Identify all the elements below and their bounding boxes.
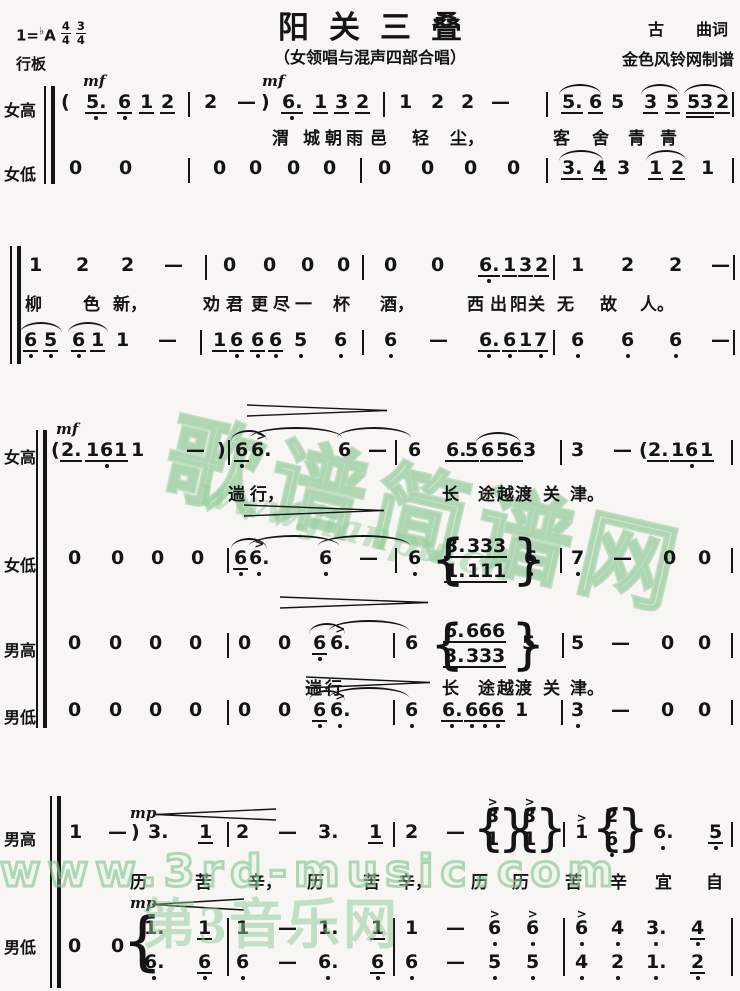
octave-dot [674,354,678,358]
accent-icon: > [577,808,587,828]
sheet-music-page: 1=♭A4434 行板 阳关三叠 （女领唱与混声四部合唱） 古 曲词 金色风铃网… [0,0,740,991]
note-value: 2 [355,92,370,114]
lyric-syllable: 更 [251,290,268,315]
lyric-syllable: 出 [490,290,507,315]
note-value: 0 [67,633,82,653]
note-token: 0 [286,158,301,178]
note-value: 4 [690,918,705,940]
lyric-syllable: 劝 [203,290,220,315]
accent-icon: > [577,904,587,924]
lyric-syllable: 遄 [228,480,245,505]
note-token: 6 [508,440,523,462]
lyric-syllable: 青 [628,124,645,149]
barline [360,158,362,183]
octave-dot [235,354,239,358]
octave-dot [531,942,535,946]
note-value: 6 [318,548,333,568]
note-value: — [358,548,379,568]
hairpin [156,808,276,822]
note-value: 0 [697,633,712,653]
note-token: — [490,92,511,112]
note-value: 6 [684,440,699,462]
slur-arc [646,150,686,161]
hairpin [244,504,384,518]
note-token: 0 [377,158,392,178]
hairpin-lines [306,676,430,690]
note-value: — [490,92,511,112]
chord-brace: { [431,532,465,588]
note-token: 0 [383,255,398,275]
note-token: 0 [662,548,677,568]
note-value: 0 [662,548,677,568]
lyric-syllable: 越 [497,480,514,505]
note-token: ) [260,92,271,112]
dynamic-mark: mf [262,72,284,90]
note-value: 3 [616,158,631,178]
note-token: 3 [334,92,349,114]
note-value: 3 [699,92,714,118]
note-token: 1 [198,822,213,844]
note-token: 0 [237,633,252,653]
note-value: 1 [212,330,227,352]
hairpin-lines [156,808,276,822]
note-token: 6 [268,330,283,352]
note-value: 0 [383,255,398,275]
note-value: 0 [67,548,82,568]
note-value: 0 [420,158,435,178]
note-token: 5 [464,440,479,462]
note-value: 6. [478,330,500,352]
note-value: 3 [570,700,585,720]
note-value: 2 [75,255,90,275]
octave-dot [324,572,328,576]
note-token: 5 [487,952,502,972]
octave-dot [496,724,500,728]
note-value: — [445,822,466,842]
note-value: 5 [487,952,502,972]
voice-label: 男低 [4,934,36,958]
note-value: 3 [522,440,537,460]
note-token: 6.> [248,548,270,568]
note-value: 0 [463,158,478,178]
note-token: 0 [148,633,163,653]
barline [732,158,734,183]
note-token: — [277,822,298,842]
note-token: — [710,255,731,275]
note-value: 0 [67,936,82,956]
note-token: 1 [492,561,507,583]
voice-label: 女低 [4,161,36,185]
lyric-syllable: 城 [303,124,320,149]
note-token: 6. [478,255,500,277]
octave-dot [487,279,491,283]
lyric-syllable: 故 [600,290,617,315]
lyric-syllable: 杯 [333,290,350,315]
note-value: 6. [478,255,500,277]
note-token: 3 [643,92,658,114]
note-value: 6 [508,440,523,462]
chord-brace: { [430,617,464,673]
octave-dot [326,976,330,980]
slur-arc [641,84,679,95]
note-value: 0 [322,158,337,178]
note-token: 1 [130,440,145,460]
note-value: 0 [188,633,203,653]
note-value: 0 [697,700,712,720]
note-value: 1 [514,700,529,720]
note-token: — [358,548,379,568]
note-token: 5 [525,952,540,972]
note-value: 6 [407,440,422,460]
note-value: 7 [533,330,548,352]
barline [731,700,733,725]
note-token: 2 [235,822,250,842]
accent-icon: > [528,904,538,924]
note-value: 6 [117,92,132,114]
note-token: 3 [518,255,533,277]
lyric-syllable: 津。 [570,480,604,505]
octave-dot [49,354,53,358]
note-value: 6 [404,952,419,972]
note-value: 1 [313,92,328,114]
hairpin-lines [244,504,384,518]
note-value: 2 [460,92,475,112]
note-token: 1 [368,822,383,844]
note-token: 2. [60,440,82,462]
note-value: 1 [28,255,43,275]
note-token: 2 [120,255,135,275]
note-token: 3 [699,92,714,118]
octave-dot [77,354,81,358]
note-token: — [610,633,631,653]
voice-label: 女高 [4,97,36,121]
note-token: 1 [90,330,105,352]
note-value: 6 [333,330,348,350]
lyric-syllable: 阳 [510,290,527,315]
lyric-syllable: 渡 [515,480,532,505]
note-token: 5 [665,92,680,114]
note-value: 3. [561,158,583,180]
note-value: 1 [518,330,533,352]
slur-arc [559,84,601,95]
dynamic-mark: mf [56,420,78,438]
note-token: 0 [67,548,82,568]
note-value: 6 [620,330,635,350]
barline [546,92,548,117]
lyric-syllable: 青 [660,124,677,149]
note-value: 5. [85,92,107,114]
note-value: — [612,440,633,460]
note-token: 2 [668,255,683,275]
octave-dot [203,976,207,980]
note-value: 2 [668,255,683,275]
chord-brace: } [511,617,545,673]
note-value: — [612,548,633,568]
note-value: ) [216,440,227,460]
note-token: 3 [492,536,507,558]
note-token: 7 [533,330,548,352]
note-token: 6 [404,700,419,720]
note-token: 2 [460,92,475,112]
octave-dot [714,846,718,850]
octave-dot [376,976,380,980]
octave-dot [580,976,584,980]
note-value: 6 [337,440,352,460]
lyric-syllable: 关 [543,674,560,699]
note-token: 5. [85,92,107,114]
note-value: 0 [118,158,133,178]
note-token: 0 [108,633,123,653]
watermark-3rdmusic-name: 第3音乐网 [142,880,400,959]
note-value: 5 [610,92,625,112]
note-value: 2 [610,952,625,972]
octave-dot [616,976,620,980]
note-token: 0 [277,633,292,653]
note-token: 3 [491,646,506,668]
note-token: 1 [518,330,533,352]
barline [393,633,395,658]
note-token: 1 [514,700,529,720]
voice-label: 男高 [4,637,36,661]
note-token: 2 [715,92,730,114]
barline [395,548,397,573]
note-token: 6 [668,330,683,350]
system-bracket [10,246,21,364]
lyric-syllable: 酒， [380,290,414,315]
lyric-syllable: 人。 [640,290,674,315]
note-token: 3 [570,700,585,720]
song-title: 阳关三叠 [0,2,740,47]
octave-dot [493,976,497,980]
note-token: 2 [355,92,370,114]
note-token: 6> [525,918,540,938]
note-token: ) [216,440,227,460]
note-token: 1 [502,255,517,277]
chord-brace: } [512,532,546,588]
octave-dot [339,354,343,358]
note-value: 6 [404,633,419,653]
barline [227,822,229,847]
note-token: — [107,822,128,842]
note-token: 6 [312,700,327,722]
hairpin [280,596,428,610]
note-token: 6 [684,440,699,462]
note-value: — [710,330,731,350]
barline [731,548,733,573]
note-token: 1 [212,330,227,352]
note-value: 0 [237,633,252,653]
note-value: 4 [592,158,607,180]
note-value: 5 [43,330,58,352]
note-token: 0 [188,633,203,653]
note-value: 1 [570,255,585,275]
note-token: 0 [336,255,351,275]
note-token: 6.> [329,700,351,720]
barline [560,548,562,573]
lyric-syllable: 尘， [450,124,484,149]
note-value: 6 [668,330,683,350]
note-token: 3 [616,158,631,178]
hairpin [247,404,387,418]
note-token: 0 [67,633,82,653]
note-value: 6 [312,633,327,655]
lyric-syllable: 邑 [370,124,387,149]
note-token: 1 [85,440,100,462]
note-token: 0 [660,700,675,720]
note-value: 6 [491,621,506,643]
barline [546,158,548,183]
barline [362,255,364,280]
note-token: 1 [139,92,154,114]
barline [395,440,397,465]
note-token: — [157,330,178,350]
note-token: 2 [534,255,549,277]
octave-dot [389,354,393,358]
octave-dot [580,942,584,946]
note-value: 1 [198,822,213,844]
note-value: 0 [277,633,292,653]
octave-dot [576,724,580,728]
note-value: 0 [430,255,445,275]
note-token: 6 [490,700,505,722]
lyric-syllable: 客 [553,124,570,149]
lyric-syllable: 关 [528,290,545,315]
note-token: 0 [150,548,165,568]
note-token: 5 [293,330,308,350]
note-token: 7 [570,548,585,568]
slur-arc [20,322,62,333]
octave-dot [654,942,658,946]
note-value: — [277,822,298,842]
note-value: 0 [697,548,712,568]
note-value: 2. [60,440,82,462]
octave-dot [508,354,512,358]
note-token: 0 [110,548,125,568]
barline [561,700,563,725]
note-value: 1 [502,255,517,277]
note-token: — [612,440,633,460]
note-token: 1 [570,255,585,275]
note-token: — [710,330,731,350]
voice-label: 女低 [4,552,36,576]
barline [562,633,564,658]
note-token: 6. [441,700,463,722]
note-value: 0 [148,700,163,720]
note-value: 2 [235,822,250,842]
note-value: 1 [648,158,663,180]
note-token: 0 [68,158,83,178]
barline [731,633,733,658]
barline [560,440,562,465]
octave-dot [257,572,261,576]
note-value: 6 [23,330,38,352]
note-value: 3. [317,822,339,842]
note-value: 6 [502,330,517,352]
note-value: 6 [312,700,327,722]
note-value: 4 [610,918,625,938]
lyric-syllable: 关 [543,480,560,505]
note-token: — [445,952,466,972]
lyric-syllable: 途 [478,480,495,505]
octave-dot [410,976,414,980]
note-token: 6 [480,440,495,462]
note-value: 2 [690,952,705,974]
lyric-syllable: 西 [467,290,484,315]
note-token: 0 [660,633,675,653]
note-token: 6 [404,633,419,653]
octave-dot [483,724,487,728]
voice-label: 女高 [4,444,36,468]
note-value: 6. [281,92,303,114]
note-value: 0 [212,158,227,178]
note-token: — [428,330,449,350]
note-token: 0 [463,158,478,178]
lyric-syllable: 渭 [272,124,289,149]
note-value: 1 [670,440,685,462]
octave-dot [239,572,243,576]
barline [362,330,364,355]
note-value: 6 [99,440,114,462]
note-value: 1 [492,561,507,583]
barline [563,918,565,976]
octave-dot [450,724,454,728]
note-value: 0 [286,158,301,178]
note-value: 3 [518,255,533,277]
note-token: ) [130,822,141,842]
barline [553,330,555,355]
note-value: 6 [570,330,585,350]
note-token: 0 [697,700,712,720]
note-token: 4 [592,158,607,180]
note-token: 0 [212,158,227,178]
barline [733,255,735,280]
lyric-syllable: 一 [295,290,312,315]
note-token: 6 [233,548,248,570]
note-token: 1 [28,255,43,275]
lyric-syllable: 长 [442,480,459,505]
lyric-syllable: 宜 [655,868,672,893]
note-value: 1 [368,822,383,844]
note-value: 2 [203,92,218,112]
note-value: 2 [670,158,685,180]
note-token: 1 [313,92,328,114]
octave-dot [696,942,700,946]
barline [553,255,555,280]
note-token: 6 [23,330,38,352]
note-token: 3. [147,822,169,842]
note-value: 0 [67,700,82,720]
note-token: 6 [333,330,348,350]
octave-dot [105,464,109,468]
octave-dot [531,976,535,980]
note-value: 6 [490,700,505,722]
note-token: 1 [398,92,413,112]
note-value: 0 [190,548,205,568]
octave-dot [413,572,417,576]
note-value: 6. [441,700,463,722]
note-token: 6. [652,822,674,842]
note-value: 3 [492,536,507,558]
octave-dot [318,657,322,661]
note-token: 6 [337,440,352,460]
note-token: 1 [648,158,663,180]
note-value: 3 [643,92,658,114]
note-token: — [367,440,388,460]
octave-dot [338,724,342,728]
note-token: 6 [570,330,585,350]
note-value: 0 [222,255,237,275]
lyric-syllable: 新， [113,290,147,315]
